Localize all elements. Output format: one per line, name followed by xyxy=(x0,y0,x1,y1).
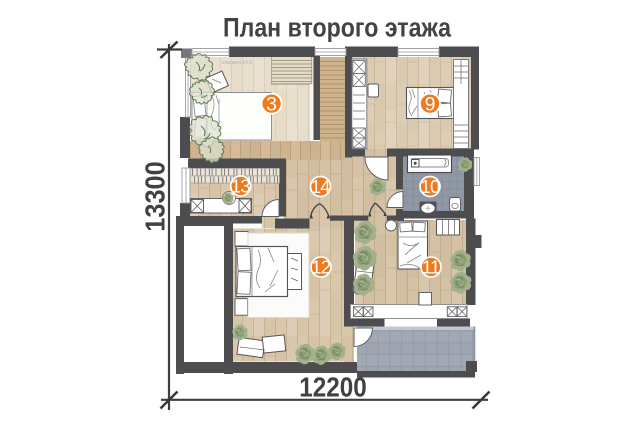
svg-text:13300: 13300 xyxy=(139,161,170,232)
svg-text:12200: 12200 xyxy=(299,371,367,402)
svg-text:12: 12 xyxy=(311,257,330,278)
svg-text:спальня 14.6: спальня 14.6 xyxy=(222,60,252,66)
svg-text:13: 13 xyxy=(231,176,250,197)
svg-text:11: 11 xyxy=(422,257,440,278)
svg-text:3: 3 xyxy=(266,94,277,116)
svg-text:14: 14 xyxy=(311,176,330,197)
svg-text:10: 10 xyxy=(421,176,440,197)
svg-text:План второго этажа: План второго этажа xyxy=(223,13,451,43)
svg-text:9: 9 xyxy=(425,94,436,116)
